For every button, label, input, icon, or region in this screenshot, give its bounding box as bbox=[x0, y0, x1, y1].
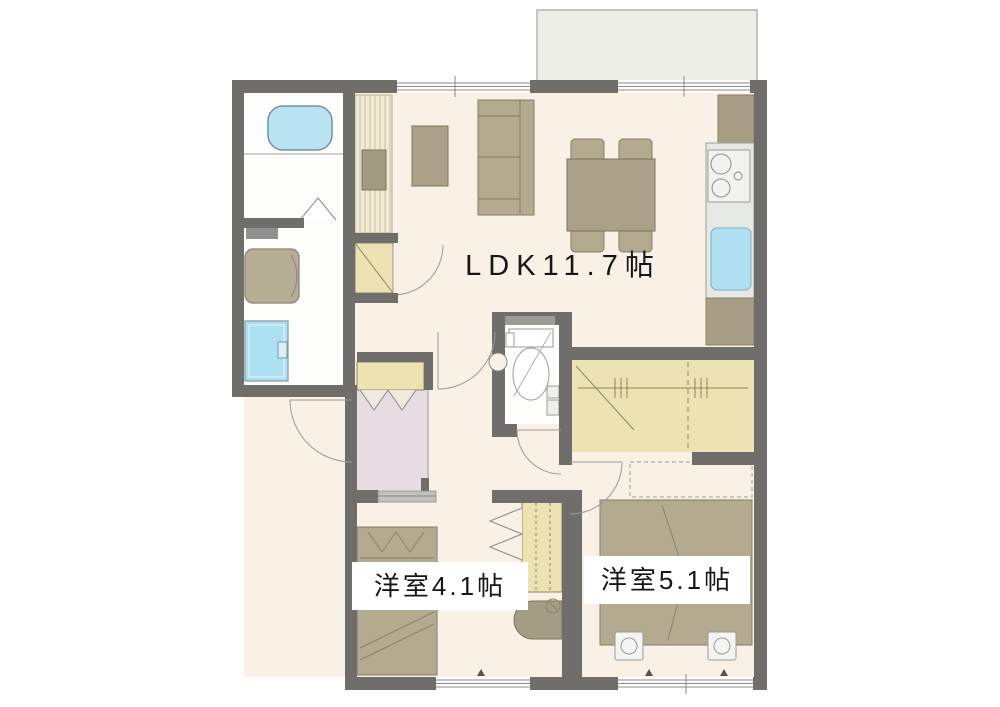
toilet-shelf bbox=[547, 386, 559, 398]
balcony bbox=[537, 10, 757, 84]
genkan-floor bbox=[357, 390, 428, 490]
walk-in-closet-floor bbox=[572, 360, 754, 452]
toilet-tank bbox=[509, 329, 553, 347]
bathtub bbox=[268, 106, 332, 150]
bedroom-b-label: 洋室5.1帖 bbox=[584, 556, 750, 604]
wall-knob bbox=[489, 353, 507, 371]
faucet bbox=[278, 342, 287, 358]
kitchen-cabinet bbox=[706, 298, 754, 345]
floor-plan: LDK11.7帖 洋室4.1帖 洋室5.1帖 bbox=[0, 0, 1000, 707]
tv bbox=[362, 150, 386, 190]
kitchen-sink bbox=[711, 228, 751, 290]
toilet-shelf bbox=[547, 400, 559, 415]
toilet-lintel bbox=[505, 316, 555, 325]
dining-table bbox=[567, 159, 655, 231]
sliding-door bbox=[378, 491, 436, 502]
toilet-bowl bbox=[513, 348, 549, 400]
bedroom-a-label: 洋室4.1帖 bbox=[352, 562, 528, 610]
coffee-table bbox=[412, 126, 448, 186]
shoe-cabinet bbox=[357, 362, 424, 390]
refrigerator-space bbox=[718, 95, 754, 143]
washing-machine bbox=[245, 249, 299, 303]
sofa bbox=[478, 100, 534, 215]
ldk-label: LDK11.7帖 bbox=[448, 246, 678, 286]
